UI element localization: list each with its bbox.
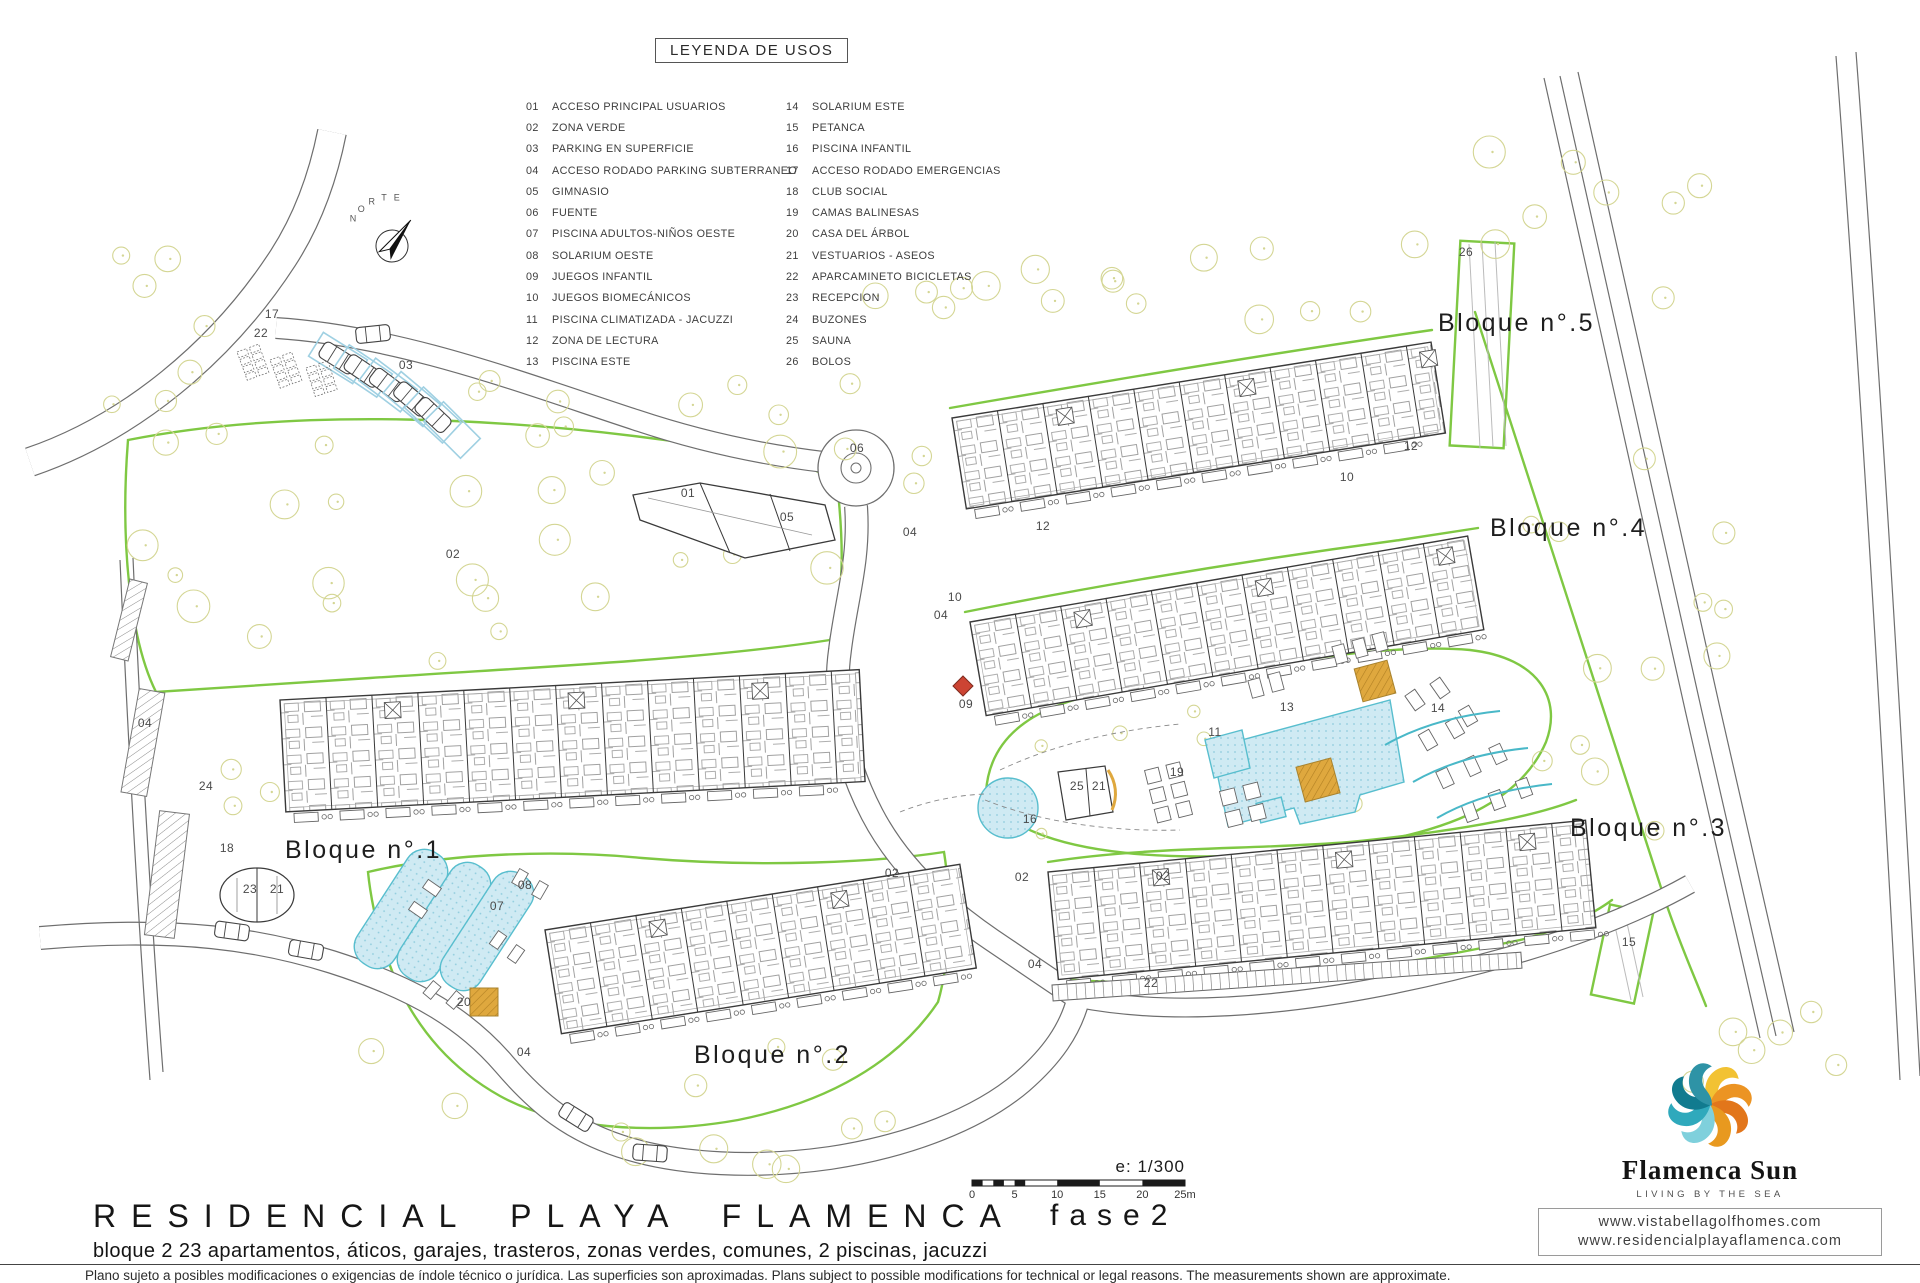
legend-item-number: 19 [786, 207, 812, 219]
tree-icon [456, 564, 488, 596]
balcony [888, 980, 913, 993]
tree-icon [260, 783, 279, 802]
tree-center-dot [478, 391, 480, 393]
legend-item-label: VESTUARIOS - ASEOS [812, 250, 935, 262]
tree-icon [1350, 301, 1371, 322]
legend-item-label: PISCINA ADULTOS-NIÑOS OESTE [552, 228, 735, 240]
tree-center-dot [1664, 297, 1666, 299]
legend-item: 26BOLOS [786, 352, 1001, 373]
tree-center-dot [1263, 247, 1265, 249]
tree-icon [1126, 294, 1146, 314]
legend-item: 12ZONA DE LECTURA [526, 330, 797, 351]
tree-icon [248, 625, 272, 649]
annotation-label: 14 [1431, 701, 1445, 715]
legend-item-label: GIMNASIO [552, 186, 609, 198]
annotation-label: 19 [1170, 765, 1184, 779]
tree-center-dot [846, 448, 848, 450]
tree-center-dot [1261, 318, 1263, 320]
legend-item: 22APARCAMINETO BICICLETAS [786, 266, 1001, 287]
road-casing [30, 132, 332, 462]
brand-url: www.vistabellagolfhomes.com [1545, 1213, 1875, 1232]
tree-icon [1634, 448, 1656, 470]
tree-center-dot [923, 455, 925, 457]
tree-center-dot [1674, 202, 1676, 204]
tree-center-dot [456, 1105, 458, 1107]
legend-item-number: 13 [526, 356, 552, 368]
project-subtitle: bloque 2 23 apartamentos, áticos, garaje… [93, 1240, 987, 1263]
balcony [1338, 448, 1363, 461]
tree-center-dot [681, 559, 683, 561]
balcony [1524, 934, 1549, 945]
tree-icon [840, 374, 860, 394]
tree-icon [1523, 205, 1547, 229]
compass [370, 211, 424, 269]
brand-urls: www.vistabellagolfhomes.comwww.residenci… [1538, 1208, 1882, 1256]
tree-icon [679, 393, 703, 417]
tree-center-dot [1497, 243, 1499, 245]
tree-icon [904, 473, 924, 493]
tree-center-dot [1581, 744, 1583, 746]
annotation-label: 22 [1144, 976, 1158, 990]
legend-item-number: 26 [786, 356, 812, 368]
tree-center-dot [169, 258, 171, 260]
annotation-label: 10 [948, 590, 962, 604]
tree-center-dot [553, 489, 555, 491]
balcony [797, 995, 822, 1008]
balinese-bed [1176, 801, 1193, 818]
tree-center-dot [851, 383, 853, 385]
tree-center-dot [697, 1084, 699, 1086]
tree-icon [685, 1075, 707, 1097]
tree-icon [1245, 305, 1274, 334]
legend-item-label: CLUB SOCIAL [812, 186, 888, 198]
legend-item: 14SOLARIUM ESTE [786, 96, 1001, 117]
annotation-label: 04 [517, 1045, 531, 1059]
annotation-label: 20 [457, 995, 471, 1009]
legend-item-number: 01 [526, 101, 552, 113]
legend-item: 16PISCINA INFANTIL [786, 139, 1001, 160]
tree-center-dot [205, 325, 207, 327]
balinese-bed [1248, 803, 1266, 821]
tree-icon [270, 490, 299, 519]
balinese-bed [1171, 781, 1188, 798]
tree-icon [1041, 290, 1064, 313]
tree-icon [875, 1111, 896, 1132]
legend-item-label: ACCESO PRINCIPAL USUARIOS [552, 101, 726, 113]
sun-lounger [1430, 677, 1450, 699]
annotation-label: 04 [934, 608, 948, 622]
juegos-infantil-09-icon [953, 676, 973, 696]
tree-center-dot [491, 380, 493, 382]
balcony [707, 791, 731, 801]
tree-center-dot [1054, 300, 1056, 302]
tree-center-dot [829, 567, 831, 569]
annotation-label: 16 [1023, 812, 1037, 826]
tree-icon [673, 553, 688, 568]
balcony [1433, 943, 1458, 954]
project-title: RESIDENCIAL PLAYA FLAMENCA [93, 1198, 1016, 1235]
annotation-label: 04 [903, 525, 917, 539]
car-icon [632, 1144, 667, 1162]
annotation-label: 15 [1622, 935, 1636, 949]
tree-icon [1801, 1001, 1822, 1022]
legend-item-number: 09 [526, 271, 552, 283]
legend-item-number: 24 [786, 314, 812, 326]
legend-item: 07PISCINA ADULTOS-NIÑOS OESTE [526, 224, 797, 245]
tree-center-dot [1781, 1031, 1783, 1033]
tree-icon [1250, 237, 1273, 260]
bike-rack [270, 352, 302, 388]
legend-item: 11PISCINA CLIMATIZADA - JACUZZI [526, 309, 797, 330]
tree-center-dot [325, 444, 327, 446]
compass-letter: R [369, 197, 376, 207]
compass-letter: E [394, 192, 400, 202]
tree-icon [1719, 1018, 1747, 1046]
legend-item: 15PETANCA [786, 117, 1001, 138]
annotation-label: 21 [270, 882, 284, 896]
legend-column-right: 14SOLARIUM ESTE15PETANCA16PISCINA INFANT… [786, 96, 1001, 373]
legend-item-label: ACCESO RODADO EMERGENCIAS [812, 165, 1001, 177]
legend-item: 13PISCINA ESTE [526, 352, 797, 373]
balcony [661, 1016, 686, 1029]
tree-center-dot [1416, 243, 1418, 245]
tree-icon [1715, 600, 1733, 618]
balinese-bed [1219, 788, 1237, 806]
block-label: Bloque n°.4 [1490, 514, 1647, 542]
tree-icon [1582, 758, 1609, 785]
tree-center-dot [1536, 215, 1538, 217]
annotation-label: 11 [1208, 725, 1221, 739]
tree-center-dot [1543, 760, 1545, 762]
tree-center-dot [286, 503, 288, 505]
tree-icon [359, 1039, 384, 1064]
sun-lounger [1418, 729, 1437, 751]
tree-center-dot [1718, 655, 1720, 657]
annotation-label: 02 [1156, 869, 1170, 883]
brand-tagline: LIVING BY THE SEA [1538, 1189, 1882, 1200]
balinese-bed [1225, 809, 1243, 827]
tree-center-dot [468, 490, 470, 492]
annotation-label: 07 [490, 899, 504, 913]
balcony [751, 1002, 776, 1015]
sun-lounger [1248, 678, 1264, 698]
annotation-label: 09 [959, 697, 973, 711]
legend-item-number: 22 [786, 271, 812, 283]
legend-item: 08SOLARIUM OESTE [526, 245, 797, 266]
tree-center-dot [261, 635, 263, 637]
legend-item-number: 14 [786, 101, 812, 113]
tree-center-dot [559, 400, 561, 402]
balcony [706, 1009, 731, 1022]
casa-del-arbol-20 [470, 988, 498, 1016]
legend-item-number: 03 [526, 143, 552, 155]
tree-center-dot [1704, 601, 1706, 603]
tree-center-dot [337, 501, 339, 503]
tree-icon [1713, 522, 1735, 544]
balcony [432, 805, 456, 815]
tree-icon [315, 436, 333, 454]
annotation-label: 04 [138, 716, 152, 730]
balcony [294, 812, 318, 822]
legend-item-label: APARCAMINETO BICICLETAS [812, 271, 972, 283]
tree-center-dot [565, 425, 567, 427]
legend-item-label: RECEPCION [812, 292, 880, 304]
balcony [1202, 470, 1227, 483]
tree-center-dot [1361, 310, 1363, 312]
tree-center-dot [333, 602, 335, 604]
tree-icon [1191, 244, 1218, 271]
annotation-label: 08 [518, 878, 532, 892]
brand-name: Flamenca Sun [1538, 1155, 1882, 1186]
legend-item-label: JUEGOS INFANTIL [552, 271, 653, 283]
bike-rack [237, 344, 269, 380]
tree-icon [1652, 287, 1674, 309]
legend-item: 20CASA DEL ÁRBOL [786, 224, 1001, 245]
annotation-label: 12 [1404, 439, 1418, 453]
legend-item-label: ZONA VERDE [552, 122, 626, 134]
tree-center-dot [112, 403, 114, 405]
balcony [1247, 463, 1272, 476]
tree-icon [328, 494, 343, 509]
legend-item-number: 08 [526, 250, 552, 262]
legend-item-label: JUEGOS BIOMECÁNICOS [552, 292, 691, 304]
tree-icon [811, 552, 843, 584]
legend-item-number: 20 [786, 228, 812, 240]
legend-item-label: ACCESO RODADO PARKING SUBTERRANEO [552, 165, 797, 177]
tree-center-dot [557, 539, 559, 541]
balcony [386, 807, 410, 817]
tree-icon [177, 590, 210, 623]
tree-center-dot [779, 414, 781, 416]
tree-center-dot [1575, 161, 1577, 163]
tree-center-dot [1608, 191, 1610, 193]
legend-item: 24BUZONES [786, 309, 1001, 330]
balcony [615, 1023, 640, 1036]
tree-center-dot [1599, 667, 1601, 669]
tree-icon [313, 567, 344, 598]
balinese-bed [1243, 782, 1261, 800]
tree-icon [581, 583, 609, 611]
annotation-label: 13 [1280, 700, 1294, 714]
tree-icon [133, 274, 156, 297]
tree-center-dot [1114, 280, 1116, 282]
tree-icon [429, 653, 446, 670]
block-label: Bloque n°.1 [285, 836, 442, 864]
annotation-label: 01 [681, 486, 695, 500]
tree-icon [590, 461, 615, 486]
annotation-label: 06 [850, 441, 864, 455]
brand-logo: Flamenca Sun LIVING BY THE SEA www.vista… [1538, 1062, 1882, 1256]
balcony [933, 973, 958, 986]
tree-center-dot [1753, 1049, 1755, 1051]
balcony [1111, 484, 1136, 497]
legend-item: 19CAMAS BALINESAS [786, 202, 1001, 223]
legend-item: 21VESTUARIOS - ASEOS [786, 245, 1001, 266]
tree-center-dot [167, 400, 169, 402]
annotation-label: 02 [885, 866, 899, 880]
phase-label: fase2 [1050, 1199, 1178, 1233]
tree-center-dot [1041, 832, 1043, 834]
legend-item-label: BUZONES [812, 314, 867, 326]
tree-icon [469, 383, 486, 400]
tree-icon [1768, 1020, 1793, 1045]
tree-icon [1662, 192, 1684, 214]
tree-icon [450, 475, 482, 507]
annotation-label: 21 [1092, 779, 1106, 793]
tree-center-dot [603, 472, 605, 474]
sauna-building [1058, 766, 1115, 820]
sun-lounger [507, 945, 524, 964]
legend-item-number: 17 [786, 165, 812, 177]
tree-center-dot [196, 605, 198, 607]
tree-icon [912, 446, 931, 465]
legend-item: 02ZONA VERDE [526, 117, 797, 138]
balcony [1295, 956, 1320, 967]
tree-icon [442, 1093, 467, 1118]
balinese-bed [1154, 806, 1171, 823]
tree-center-dot [738, 384, 740, 386]
legend-item-number: 23 [786, 292, 812, 304]
legend-item-number: 16 [786, 143, 812, 155]
tree-center-dot [692, 404, 694, 406]
tree-icon [538, 477, 565, 504]
legend-item: 10JUEGOS BIOMECÁNICOS [526, 288, 797, 309]
legend-item-label: SOLARIUM OESTE [552, 250, 654, 262]
tree-center-dot [1311, 310, 1313, 312]
legend-item: 05GIMNASIO [526, 181, 797, 202]
balcony [1020, 499, 1045, 512]
tree-icon [224, 797, 242, 815]
tree-center-dot [191, 371, 193, 373]
legend-item: 18CLUB SOCIAL [786, 181, 1001, 202]
balcony [661, 793, 685, 803]
tree-center-dot [1491, 151, 1493, 153]
legend-title: LEYENDA DE USOS [655, 38, 848, 63]
tree-center-dot [622, 1131, 624, 1133]
block-2-building [545, 864, 978, 1044]
annotation-label: 10 [1340, 470, 1354, 484]
tree-center-dot [915, 482, 917, 484]
tree-icon [323, 594, 341, 612]
annotation-label: 03 [399, 358, 413, 372]
balcony [1341, 952, 1366, 963]
annotation-label: 17 [265, 307, 279, 321]
block-label: Bloque n°.2 [694, 1041, 851, 1069]
pergola-1 [1354, 660, 1396, 702]
legend-item-label: PISCINA CLIMATIZADA - JACUZZI [552, 314, 733, 326]
legend-item-label: SOLARIUM ESTE [812, 101, 905, 113]
tree-icon [113, 247, 130, 264]
tree-center-dot [167, 441, 169, 443]
legend-item-number: 11 [526, 314, 552, 326]
balcony [1387, 948, 1412, 959]
tree-center-dot [438, 660, 440, 662]
legend-item: 06FUENTE [526, 202, 797, 223]
tree-center-dot [1041, 745, 1043, 747]
balcony [524, 800, 548, 810]
annotation-label: 26 [1459, 245, 1473, 259]
pool-infantil-16 [978, 778, 1038, 838]
balcony [753, 788, 777, 798]
tree-center-dot [788, 1168, 790, 1170]
legend-item-number: 07 [526, 228, 552, 240]
legend-item: 01ACCESO PRINCIPAL USUARIOS [526, 96, 797, 117]
tree-center-dot [373, 1050, 375, 1052]
entrance-building [633, 483, 835, 558]
tree-icon [554, 417, 573, 436]
tree-icon [769, 405, 789, 425]
compass-label: NORTE [350, 192, 400, 223]
tree-center-dot [331, 582, 333, 584]
balcony [478, 803, 502, 813]
legend-item-label: PISCINA INFANTIL [812, 143, 911, 155]
tree-center-dot [487, 597, 489, 599]
tree-center-dot [539, 434, 541, 436]
tree-center-dot [1724, 608, 1726, 610]
car-icon [355, 324, 390, 343]
legend-item-label: ZONA DE LECTURA [552, 335, 659, 347]
legend-item-number: 21 [786, 250, 812, 262]
tree-icon [1688, 174, 1712, 198]
balcony [570, 1031, 595, 1044]
tree-center-dot [1654, 668, 1656, 670]
balcony [340, 810, 364, 820]
balcony [1570, 930, 1595, 941]
balcony [842, 988, 867, 1001]
tree-center-dot [234, 805, 236, 807]
annotation-label: 18 [220, 841, 234, 855]
tree-center-dot [271, 791, 273, 793]
legend-item-label: PETANCA [812, 122, 865, 134]
tree-icon [1641, 657, 1664, 680]
balcony [570, 798, 594, 808]
tree-center-dot [1735, 1031, 1737, 1033]
compass-letter: O [358, 204, 365, 214]
legend-item: 04ACCESO RODADO PARKING SUBTERRANEO [526, 160, 797, 181]
tree-icon [1021, 255, 1049, 283]
legend-item-number: 02 [526, 122, 552, 134]
tree-icon [1738, 1037, 1765, 1064]
tree-icon [1584, 654, 1612, 682]
block-1-building [280, 670, 866, 823]
legend-item-number: 18 [786, 186, 812, 198]
annotation-label: 25 [1070, 779, 1084, 793]
compass-letter: N [350, 214, 357, 224]
tree-center-dot [232, 768, 234, 770]
scale-label: e: 1/300 [1116, 1157, 1185, 1176]
tree-icon [1561, 150, 1585, 174]
legend-item-number: 12 [526, 335, 552, 347]
legend-item-number: 06 [526, 207, 552, 219]
tree-center-dot [1037, 268, 1039, 270]
tree-center-dot [853, 1127, 855, 1129]
tree-center-dot [782, 450, 784, 452]
tree-center-dot [1701, 185, 1703, 187]
tree-center-dot [500, 630, 502, 632]
annotation-label: 02 [446, 547, 460, 561]
tree-center-dot [1137, 302, 1139, 304]
legend-item-number: 04 [526, 165, 552, 177]
tree-center-dot [176, 574, 178, 576]
annotation-label: 24 [199, 779, 213, 793]
disclaimer-text: Plano sujeto a posibles modificaciones o… [0, 1264, 1920, 1283]
legend-column-left: 01ACCESO PRINCIPAL USUARIOS02ZONA VERDE0… [526, 96, 797, 373]
legend-item-label: FUENTE [552, 207, 598, 219]
tree-icon [1473, 136, 1505, 168]
legend-item-label: CAMAS BALINESAS [812, 207, 919, 219]
tree-center-dot [715, 1148, 717, 1150]
legend-item-number: 10 [526, 292, 552, 304]
